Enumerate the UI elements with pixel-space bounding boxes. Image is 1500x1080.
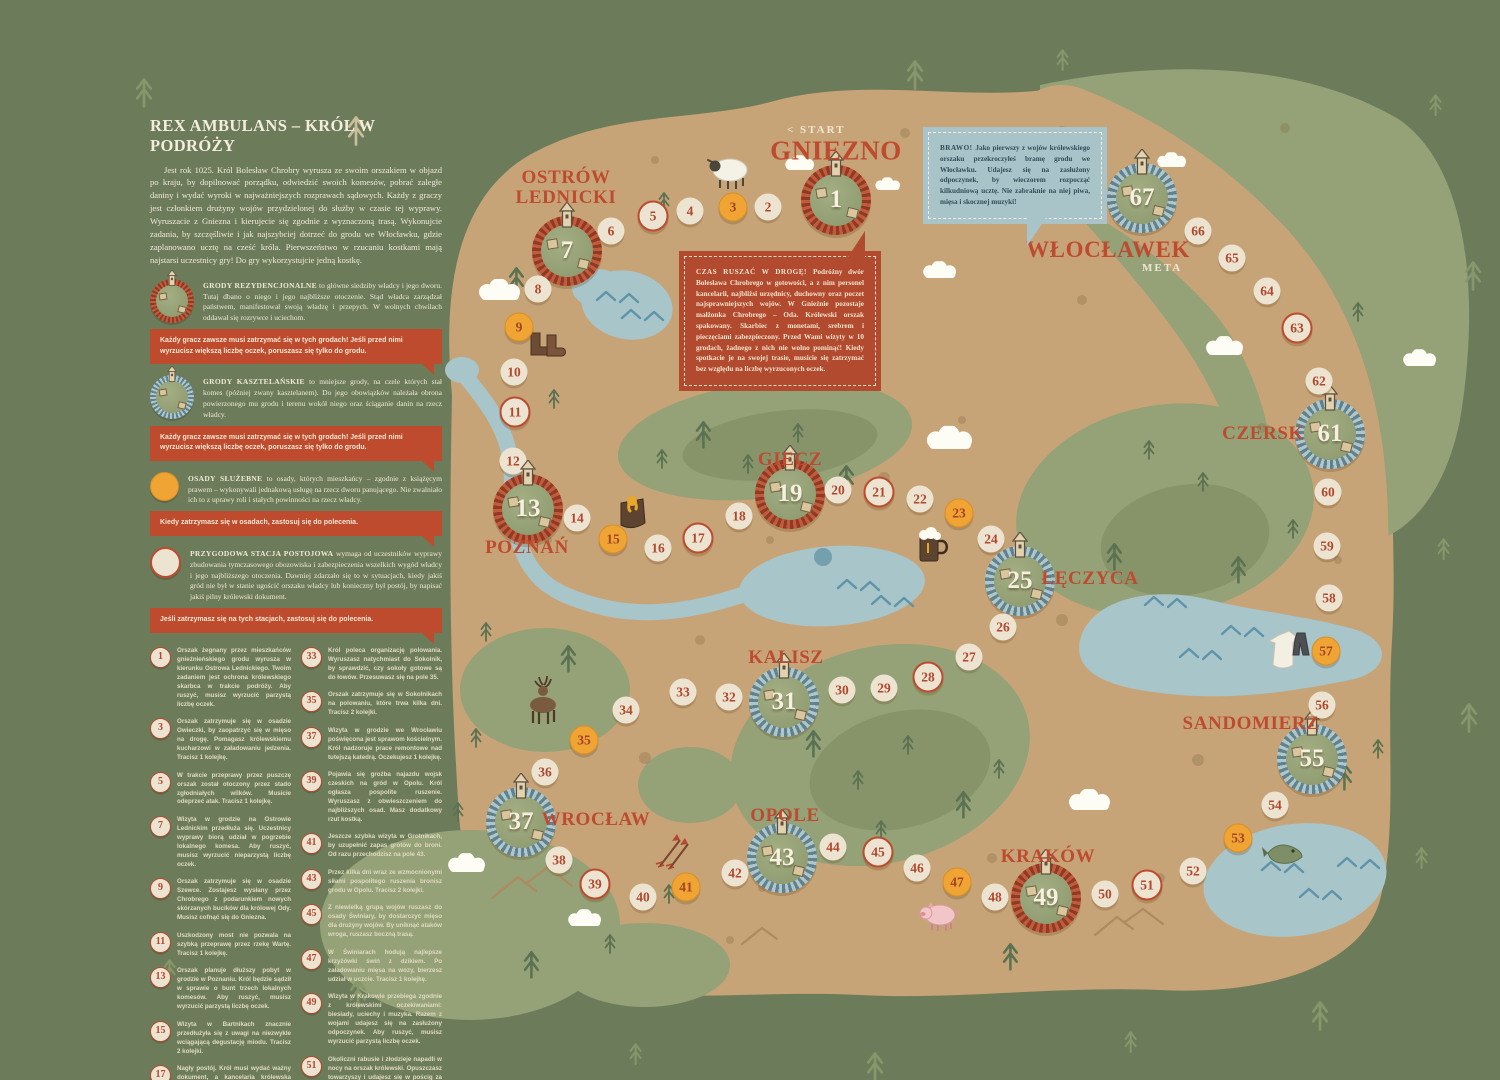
ground-dot — [1334, 556, 1342, 564]
rules-column-right: 33Król poleca organizację polowania. Wyr… — [301, 647, 442, 1080]
space-number: 17 — [691, 530, 705, 546]
space-number: 10 — [507, 364, 521, 380]
rule-item-35: 35Orszak zatrzymuje się w Sokolnikach na… — [301, 691, 442, 718]
space-number: 60 — [1321, 484, 1335, 500]
legend-text: PRZYGODOWA STACJA POSTOJOWA wymaga od uc… — [190, 549, 442, 603]
space-38[interactable]: 38 — [546, 847, 573, 874]
space-number: 43 — [770, 844, 795, 872]
space-number: 44 — [826, 839, 840, 855]
hut-icon — [177, 305, 186, 314]
space-47[interactable]: 47 — [943, 868, 972, 897]
legend-text: OSADY SŁUŻEBNE to osady, których mieszka… — [188, 474, 442, 507]
rule-text: Orszak zatrzymuje się w osadzie Szewce. … — [177, 878, 291, 923]
rule-number: 47 — [301, 949, 322, 970]
space-number: 48 — [988, 889, 1002, 905]
rule-item-15: 15Wizyta w Bartnikach znacznie przedłuży… — [150, 1021, 291, 1057]
rules-list: 1Orszak żegnany przez mieszkańców gnieźn… — [150, 647, 442, 1080]
space-28[interactable]: 28 — [913, 662, 944, 693]
space-number: 16 — [651, 540, 665, 556]
rule-text: Orszak zatrzymuje się w osadzie Owieczki… — [177, 718, 291, 763]
space-18[interactable]: 18 — [726, 503, 753, 530]
rule-text: Wizyta w Bartnikach znacznie przedłużyła… — [177, 1021, 291, 1057]
rule-text: W trakcie przeprawy przez puszczę orszak… — [177, 772, 291, 808]
space-33[interactable]: 33 — [670, 679, 697, 706]
space-number: 25 — [1008, 567, 1033, 595]
space-number: 4 — [687, 203, 694, 219]
rule-item-5: 5W trakcie przeprawy przez puszczę orsza… — [150, 772, 291, 808]
legend: GRODY REZYDENCJONALNE to główne siedziby… — [150, 279, 442, 633]
space-5[interactable]: 5 — [638, 201, 669, 232]
legend-callout: Każdy gracz zawsze musi zatrzymać się w … — [150, 426, 442, 461]
space-50[interactable]: 50 — [1092, 881, 1119, 908]
space-number: 64 — [1260, 283, 1274, 299]
ground-dot — [1056, 614, 1068, 626]
board-game-poster: REX AMBULANS – KRÓL W PODRÓŻY Jest rok 1… — [0, 0, 1500, 1080]
tower-icon — [520, 460, 536, 486]
rule-text: Jeszcze szybka wizyta w Grotnikach, by u… — [328, 833, 442, 860]
rule-number: 51 — [301, 1056, 322, 1077]
city-label--czyca: ŁĘCZYCA — [1041, 568, 1138, 590]
space-4[interactable]: 4 — [677, 198, 704, 225]
space-59[interactable]: 59 — [1314, 533, 1341, 560]
rule-item-41: 41Jeszcze szybka wizyta w Grotnikach, by… — [301, 833, 442, 860]
space-number: 31 — [772, 688, 797, 716]
space-number: 29 — [877, 680, 891, 696]
tower-icon — [1134, 149, 1150, 175]
space-number: 63 — [1290, 320, 1304, 336]
legend-callout: Kiedy zatrzymasz się w osadach, zastosuj… — [150, 511, 442, 536]
tower-icon — [167, 270, 177, 286]
space-number: 14 — [570, 510, 584, 526]
space-number: 32 — [722, 689, 736, 705]
space-number: 9 — [516, 319, 523, 335]
ground-dot — [987, 853, 997, 863]
ground-dot — [766, 536, 774, 544]
rule-item-7: 7Wizyta w grodzie na Ostrowie Lednickim … — [150, 816, 291, 870]
sheep-icon — [702, 154, 754, 190]
space-number: 3 — [730, 199, 737, 215]
tower-icon — [1012, 532, 1028, 558]
space-30[interactable]: 30 — [829, 677, 856, 704]
space-number: 7 — [561, 237, 574, 265]
rules-column-left: 1Orszak żegnany przez mieszkańców gnieźn… — [150, 647, 291, 1080]
city-label-wroc-aw: WROCŁAW — [542, 809, 651, 831]
rule-text: Wizyta w Krakowie przebiega zgodnie z kr… — [328, 993, 442, 1047]
hut-icon — [577, 258, 590, 270]
rule-item-13: 13Orszak planuje dłuższy pobyt w grodzie… — [150, 967, 291, 1012]
space-number: 22 — [913, 491, 927, 507]
space-20[interactable]: 20 — [825, 477, 852, 504]
space-number: 56 — [1315, 697, 1329, 713]
legend-item: GRODY REZYDENCJONALNE to główne siedziby… — [150, 279, 442, 325]
space-number: 1 — [830, 186, 843, 214]
space-60[interactable]: 60 — [1315, 479, 1342, 506]
space-1[interactable]: 1 — [801, 165, 871, 235]
rule-item-3: 3Orszak zatrzymuje się w osadzie Owieczk… — [150, 718, 291, 763]
city-label-sandomierz: SANDOMIERZ — [1183, 713, 1320, 735]
space-number: 28 — [921, 669, 935, 685]
space-number: 46 — [910, 860, 924, 876]
space-number: 51 — [1140, 877, 1154, 893]
space-number: 27 — [962, 649, 976, 665]
space-64[interactable]: 64 — [1254, 278, 1281, 305]
city-label-giecz: GIECZ — [758, 449, 822, 471]
space-number: 24 — [984, 531, 998, 547]
rule-number: 37 — [301, 727, 322, 748]
space-number: 21 — [872, 484, 886, 500]
space-number: 53 — [1231, 830, 1245, 846]
rule-number: 35 — [301, 691, 322, 712]
rule-number: 33 — [301, 647, 322, 668]
space-number: 58 — [1322, 590, 1336, 606]
space-21[interactable]: 21 — [864, 477, 895, 508]
fish-icon — [1262, 839, 1306, 873]
hut-icon — [815, 187, 827, 199]
space-number: 30 — [835, 682, 849, 698]
space-number: 11 — [509, 404, 522, 420]
legend-callout: Każdy gracz zawsze musi zatrzymać się w … — [150, 329, 442, 364]
space-number: 18 — [732, 508, 746, 524]
space-62[interactable]: 62 — [1306, 368, 1333, 395]
rule-text: Orszak żegnany przez mieszkańców gnieźni… — [177, 647, 291, 710]
hut-icon — [159, 292, 168, 300]
bubble-blue-text: Jako pierwszy z wojów królewskiego orsza… — [940, 144, 1090, 206]
beer-mug-icon — [914, 525, 950, 565]
meta-label: META — [1142, 262, 1182, 274]
space-number: 65 — [1225, 250, 1239, 266]
osada-sluzebna-icon — [150, 472, 179, 501]
rule-number: 39 — [301, 771, 322, 792]
rule-number: 17 — [150, 1065, 171, 1080]
space-24[interactable]: 24 — [978, 526, 1005, 553]
space-34[interactable]: 34 — [613, 697, 640, 724]
rule-number: 11 — [150, 932, 171, 953]
space-9[interactable]: 9 — [505, 313, 534, 342]
space-number: 5 — [650, 208, 657, 224]
rule-number: 1 — [150, 647, 171, 668]
arrows-icon — [650, 832, 694, 872]
tower-icon — [513, 773, 529, 799]
space-10[interactable]: 10 — [501, 359, 528, 386]
stacja-postojowa-icon — [150, 547, 181, 578]
intro-text: Jest rok 1025. Król Bolesław Chrobry wyr… — [150, 164, 442, 267]
rule-text: Król poleca organizację polowania. Wyrus… — [328, 647, 442, 683]
rule-item-39: 39Pojawia się groźba najazdu wojsk czesk… — [301, 771, 442, 825]
space-52[interactable]: 52 — [1180, 858, 1207, 885]
space-67[interactable]: 67 — [1107, 163, 1177, 233]
space-3[interactable]: 3 — [719, 193, 748, 222]
space-number: 19 — [778, 480, 803, 508]
space-57[interactable]: 57 — [1312, 637, 1341, 666]
space-16[interactable]: 16 — [645, 535, 672, 562]
space-8[interactable]: 8 — [525, 276, 552, 303]
pig-icon — [918, 899, 964, 931]
space-49[interactable]: 49 — [1011, 863, 1081, 933]
space-number: 6 — [608, 223, 615, 239]
bubble-red-lead: CZAS RUSZAĆ W DROGĘ! — [696, 268, 813, 276]
space-number: 38 — [552, 852, 566, 868]
laundry-icon — [1263, 629, 1315, 671]
time-to-go-speech-bubble: CZAS RUSZAĆ W DROGĘ!Podróżny dwór Bolesł… — [684, 256, 876, 386]
legend-callout: Jeśli zatrzymasz się na tych stacjach, z… — [150, 608, 442, 633]
rule-text: Wizyta w grodzie we Wrocławiu poświęcona… — [328, 727, 442, 763]
rule-text: Okoliczni rabusie i złodzieje napadli w … — [328, 1056, 442, 1080]
legend-item: OSADY SŁUŻEBNE to osady, których mieszka… — [150, 472, 442, 507]
space-26[interactable]: 26 — [990, 614, 1017, 641]
space-number: 20 — [831, 482, 845, 498]
rule-item-47: 47W Świniarach hodują najlepsze krzyżówk… — [301, 949, 442, 985]
space-39[interactable]: 39 — [580, 869, 611, 900]
legend-text: GRODY REZYDENCJONALNE to główne siedziby… — [203, 281, 442, 325]
legend-item: GRODY KASZTELAŃSKIE to mniejsze grody, n… — [150, 375, 442, 421]
space-44[interactable]: 44 — [820, 834, 847, 861]
rule-number: 45 — [301, 904, 322, 925]
space-13[interactable]: 13 — [493, 474, 563, 544]
space-31[interactable]: 31 — [749, 667, 819, 737]
space-number: 47 — [950, 874, 964, 890]
hut-icon — [846, 207, 859, 219]
space-27[interactable]: 27 — [956, 644, 983, 671]
bubble-red-text: Podróżny dwór Bolesława Chrobrego w goto… — [696, 268, 864, 373]
city-label-ostr-w-lednicki: OSTRÓW LEDNICKI — [496, 168, 636, 208]
rule-text: W Świniarach hodują najlepsze krzyżówki … — [328, 949, 442, 985]
space-53[interactable]: 53 — [1224, 824, 1253, 853]
space-45[interactable]: 45 — [863, 837, 894, 868]
rule-item-51: 51Okoliczni rabusie i złodzieje napadli … — [301, 1056, 442, 1080]
space-number: 55 — [1300, 745, 1325, 773]
space-35[interactable]: 35 — [570, 726, 599, 755]
space-number: 2 — [765, 199, 772, 215]
rule-item-37: 37Wizyta w grodzie we Wrocławiu poświęco… — [301, 727, 442, 763]
legend-item: PRZYGODOWA STACJA POSTOJOWA wymaga od uc… — [150, 547, 442, 603]
ground-dot — [1280, 123, 1290, 133]
space-number: 39 — [588, 876, 602, 892]
space-41[interactable]: 41 — [672, 873, 701, 902]
city-label-czersk: CZERSK — [1222, 423, 1304, 445]
space-48[interactable]: 48 — [982, 884, 1009, 911]
city-label-kalisz: KALISZ — [748, 647, 823, 669]
city-label-opole: OPOLE — [750, 805, 820, 827]
ground-dot — [1192, 754, 1204, 766]
space-58[interactable]: 58 — [1316, 585, 1343, 612]
rule-text: Wizyta w grodzie na Ostrowie Lednickim p… — [177, 816, 291, 870]
ground-dot — [695, 635, 705, 645]
space-number: 26 — [996, 619, 1010, 635]
grod-rezydencjonalny-icon — [150, 279, 194, 323]
rule-item-17: 17Nagły postój. Król musi wydać ważny do… — [150, 1065, 291, 1080]
rule-text: Nagły postój. Król musi wydać ważny doku… — [177, 1065, 291, 1080]
space-65[interactable]: 65 — [1219, 245, 1246, 272]
space-15[interactable]: 15 — [599, 525, 628, 554]
space-number: 40 — [636, 889, 650, 905]
space-51[interactable]: 51 — [1132, 870, 1163, 901]
space-number: 42 — [728, 865, 742, 881]
space-2[interactable]: 2 — [755, 194, 782, 221]
space-54[interactable]: 54 — [1262, 792, 1289, 819]
space-number: 33 — [676, 684, 690, 700]
lake-islet — [814, 548, 832, 566]
ground-dot — [726, 936, 734, 944]
space-23[interactable]: 23 — [945, 499, 974, 528]
rule-number: 13 — [150, 967, 171, 988]
city-label-w-oc-awek: WŁOCŁAWEK — [1026, 237, 1190, 263]
rule-item-43: 43Przez kilka dni wraz ze wzmocnionymi s… — [301, 869, 442, 896]
rule-text: Uszkodzony most nie pozwala na szybką pr… — [177, 932, 291, 959]
rule-number: 5 — [150, 772, 171, 793]
rule-text: Orszak zatrzymuje się w Sokolnikach na p… — [328, 691, 442, 718]
space-number: 12 — [506, 453, 520, 469]
rule-text: Pojawia się groźba najazdu wojsk czeskic… — [328, 771, 442, 825]
space-number: 36 — [538, 764, 552, 780]
rule-item-9: 9Orszak zatrzymuje się w osadzie Szewce.… — [150, 878, 291, 923]
grod-kasztelanski-icon — [150, 375, 194, 419]
rule-number: 7 — [150, 816, 171, 837]
rule-text: Orszak planuje dłuższy pobyt w grodzie w… — [177, 967, 291, 1012]
ground-dot — [958, 416, 966, 424]
space-number: 34 — [619, 702, 633, 718]
space-32[interactable]: 32 — [716, 684, 743, 711]
space-6[interactable]: 6 — [598, 218, 625, 245]
rule-number: 49 — [301, 993, 322, 1014]
space-number: 13 — [516, 495, 541, 523]
rule-item-11: 11Uszkodzony most nie pozwala na szybką … — [150, 932, 291, 959]
city-label-krak-w: KRAKÓW — [1001, 846, 1095, 868]
space-number: 54 — [1268, 797, 1282, 813]
ground-dot — [639, 752, 651, 764]
space-36[interactable]: 36 — [532, 759, 559, 786]
space-63[interactable]: 63 — [1282, 313, 1313, 344]
rule-number: 43 — [301, 869, 322, 890]
start-label: < START — [787, 124, 846, 136]
city-label-pozna-: POZNAŃ — [485, 537, 569, 559]
rules-panel: REX AMBULANS – KRÓL W PODRÓŻY Jest rok 1… — [150, 116, 442, 1080]
space-number: 49 — [1034, 884, 1059, 912]
bravo-speech-bubble: BRAWO!Jako pierwszy z wojów królewskiego… — [928, 132, 1102, 219]
space-40[interactable]: 40 — [630, 884, 657, 911]
space-46[interactable]: 46 — [904, 855, 931, 882]
city-label-gniezno: GNIEZNO — [770, 136, 902, 167]
space-number: 61 — [1318, 420, 1343, 448]
space-number: 37 — [509, 808, 534, 836]
rule-item-33: 33Król poleca organizację polowania. Wyr… — [301, 647, 442, 683]
game-title: REX AMBULANS – KRÓL W PODRÓŻY — [150, 116, 442, 156]
space-29[interactable]: 29 — [871, 675, 898, 702]
space-number: 50 — [1098, 886, 1112, 902]
space-number: 8 — [535, 281, 542, 297]
rule-text: Przez kilka dni wraz ze wzmocnionymi sił… — [328, 869, 442, 896]
legend-text: GRODY KASZTELAŃSKIE to mniejsze grody, n… — [203, 377, 442, 421]
space-61[interactable]: 61 — [1295, 399, 1365, 469]
space-22[interactable]: 22 — [907, 486, 934, 513]
space-17[interactable]: 17 — [683, 523, 714, 554]
rule-item-1: 1Orszak żegnany przez mieszkańców gnieźn… — [150, 647, 291, 710]
rule-number: 9 — [150, 878, 171, 899]
space-43[interactable]: 43 — [747, 823, 817, 893]
boots-icon — [527, 331, 567, 361]
deer-icon — [521, 675, 569, 725]
rule-number: 41 — [301, 833, 322, 854]
rule-text: Z niewielką grupą wojów ruszasz do osady… — [328, 904, 442, 940]
ground-dot — [651, 156, 659, 164]
space-11[interactable]: 11 — [500, 397, 531, 428]
rule-number: 3 — [150, 718, 171, 739]
rule-item-45: 45Z niewielką grupą wojów ruszasz do osa… — [301, 904, 442, 940]
space-number: 67 — [1130, 184, 1155, 212]
bubble-blue-lead: BRAWO! — [940, 144, 975, 152]
space-number: 57 — [1319, 643, 1333, 659]
space-number: 15 — [606, 531, 620, 547]
space-number: 45 — [871, 844, 885, 860]
space-number: 23 — [952, 505, 966, 521]
space-number: 35 — [577, 732, 591, 748]
tower-icon — [167, 366, 177, 382]
rule-number: 15 — [150, 1021, 171, 1042]
space-14[interactable]: 14 — [564, 505, 591, 532]
space-number: 62 — [1312, 373, 1326, 389]
space-number: 66 — [1191, 223, 1205, 239]
honey-pot-icon — [615, 493, 649, 531]
hut-icon — [546, 238, 558, 250]
space-number: 59 — [1320, 538, 1334, 554]
ground-dot — [1077, 295, 1087, 305]
space-42[interactable]: 42 — [722, 860, 749, 887]
space-number: 41 — [679, 879, 693, 895]
space-number: 52 — [1186, 863, 1200, 879]
rule-item-49: 49Wizyta w Krakowie przebiega zgodnie z … — [301, 993, 442, 1047]
